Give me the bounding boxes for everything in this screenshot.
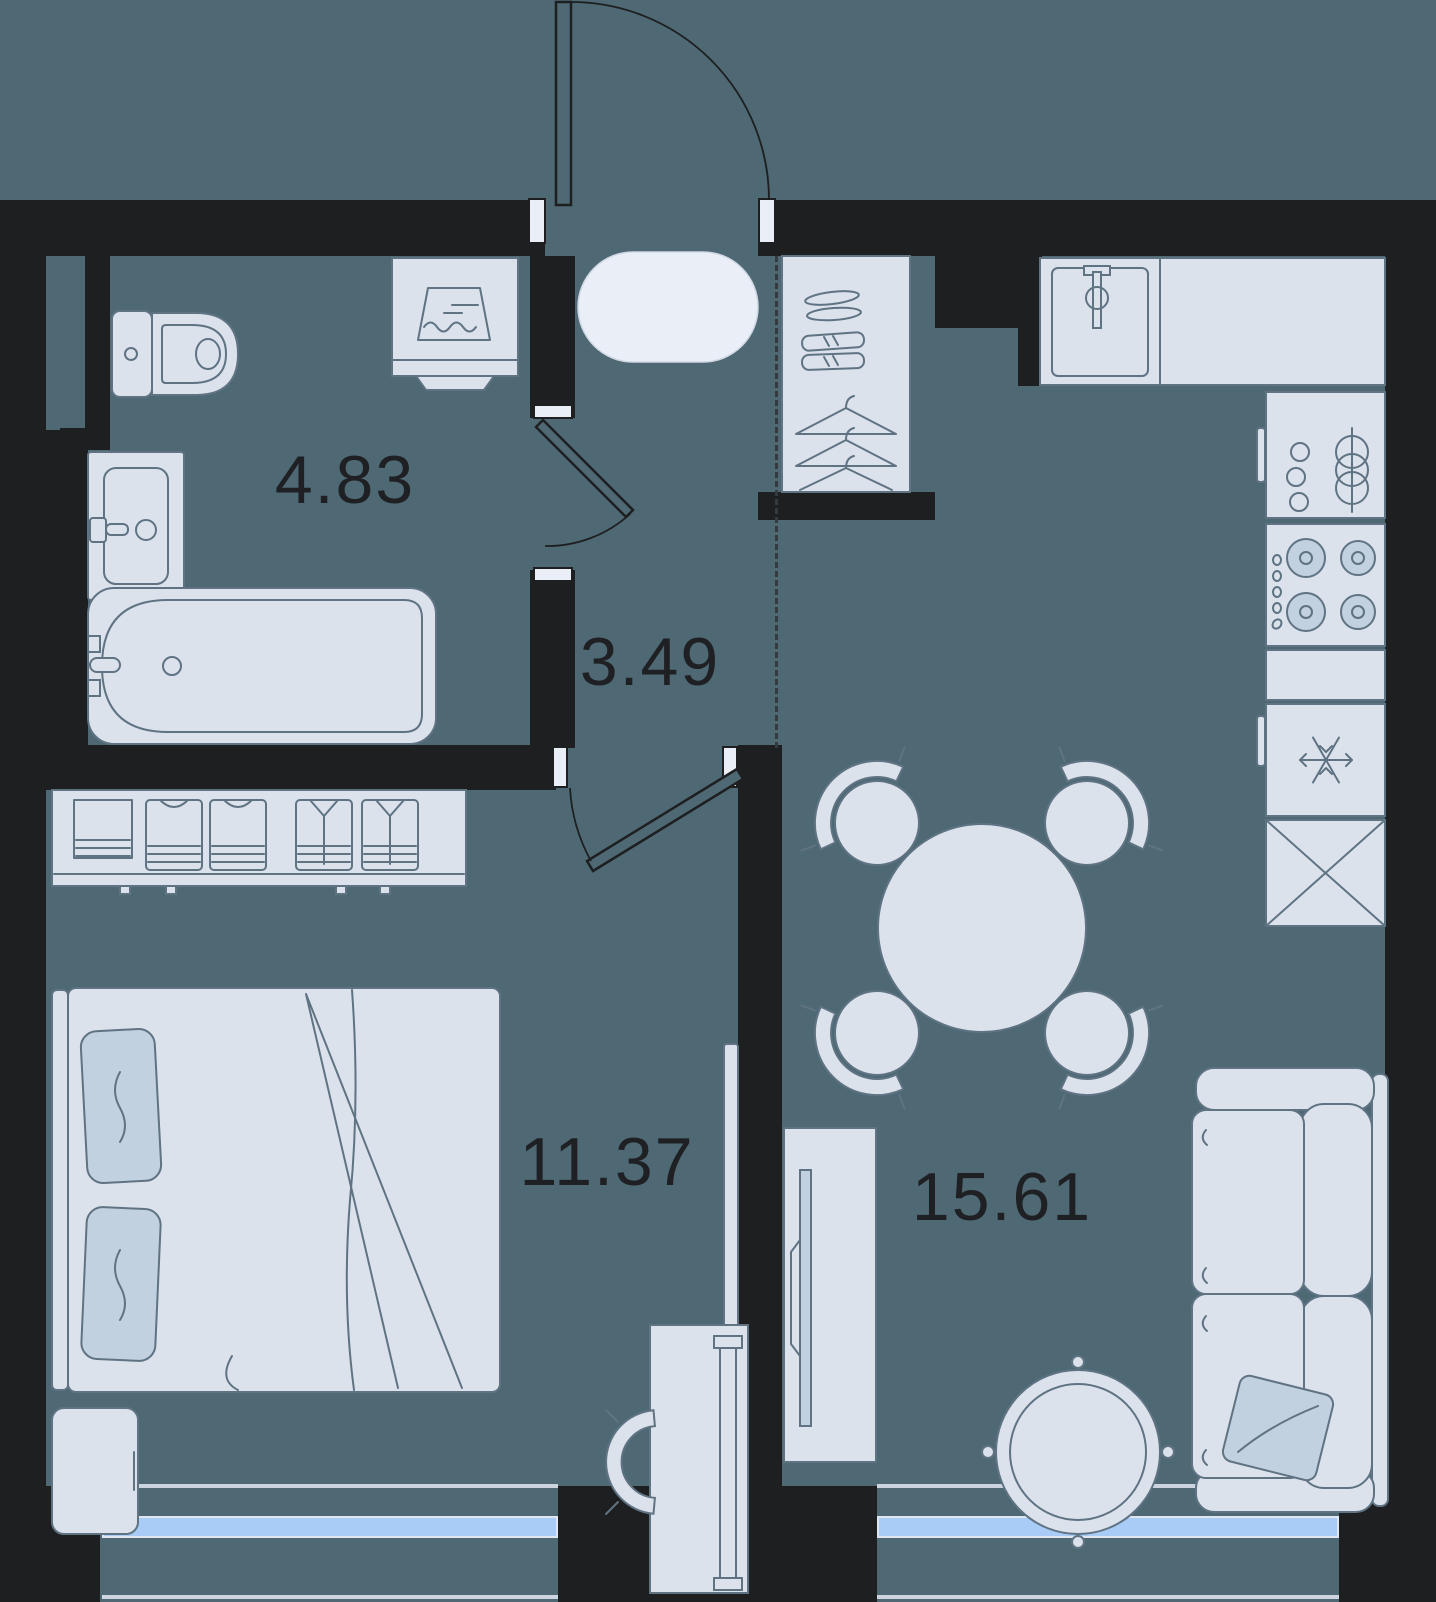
bathroom-door	[536, 420, 633, 546]
floor-plan: 4.83 3.49 11.37 15.61	[0, 0, 1436, 1602]
entrance-door	[556, 2, 769, 205]
bathroom-area-label: 4.83	[275, 441, 415, 519]
bedroom-area-label: 11.37	[519, 1123, 694, 1201]
living-area-label: 15.61	[912, 1158, 1092, 1236]
bedroom-door	[570, 769, 743, 871]
doors-layer	[0, 0, 1436, 1602]
hallway-area-label: 3.49	[580, 623, 720, 701]
